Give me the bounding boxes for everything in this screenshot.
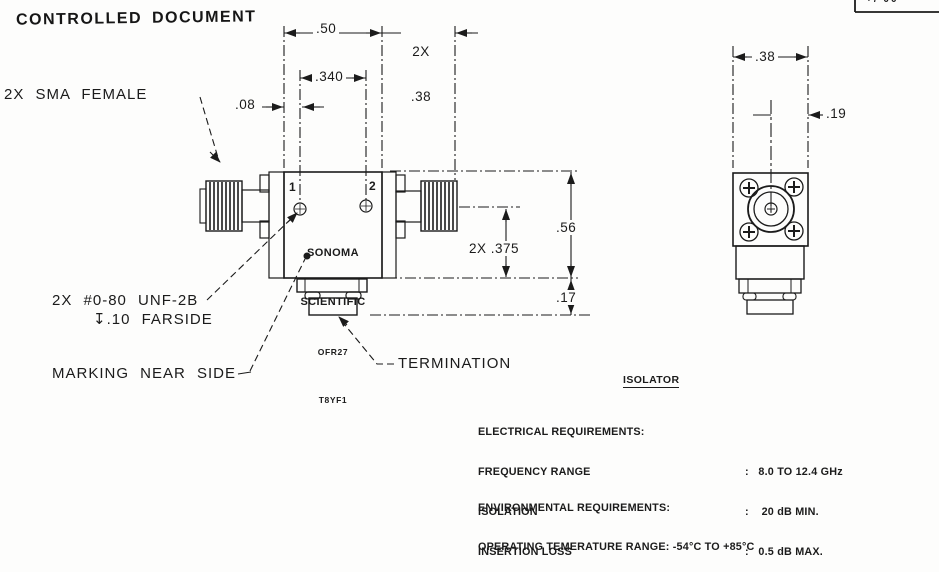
device-marking-line: SONOMA: [291, 247, 375, 260]
dim-termination-height: .17: [553, 290, 579, 305]
device-marking: SONOMA SCIENTIFIC OFR27 T8YF1: [291, 211, 375, 442]
spec-title-isolator: ISOLATOR: [623, 374, 679, 388]
callout-unf-thread: 2X #0-80 UNF-2B: [52, 292, 198, 309]
port-2-label: 2: [369, 179, 376, 193]
callout-sma-female: 2X SMA FEMALE: [4, 86, 147, 103]
dim-connector-length: 2X .38: [401, 14, 441, 134]
device-marking-line: OFR27: [291, 347, 375, 358]
dim-side-width: .38: [752, 49, 778, 64]
callout-marking-near-side: MARKING NEAR SIDE: [52, 365, 236, 382]
callout-termination: TERMINATION: [398, 355, 511, 372]
title-block-fragment-text: +/ 00: [866, 0, 899, 5]
dim-center-offset: .19: [823, 106, 849, 121]
device-marking-line: SCIENTIFIC: [291, 296, 375, 309]
dim-hole-offset: .08: [232, 97, 258, 112]
dim-port-height: 2X .375: [466, 241, 522, 256]
electrical-heading: ELECTRICAL REQUIREMENTS:: [478, 426, 933, 439]
dim-body-width: .50: [313, 21, 339, 36]
environmental-line: OPERATING TEMERATURE RANGE: -54°C TO +85…: [478, 541, 939, 554]
port-1-label: 1: [289, 180, 296, 194]
dim-hole-spacing: .340: [312, 69, 346, 84]
controlled-document-stamp: CONTROLLED DOCUMENT: [16, 8, 257, 29]
environmental-requirements: ENVIRONMENTAL REQUIREMENTS: OPERATING TE…: [478, 476, 939, 572]
callout-unf-depth: ↧.10 FARSIDE: [93, 310, 213, 328]
dim-body-height: .56: [553, 220, 579, 235]
device-marking-line: T8YF1: [291, 395, 375, 406]
environmental-heading: ENVIRONMENTAL REQUIREMENTS:: [478, 502, 939, 515]
engineering-drawing-page: CONTROLLED DOCUMENT +/ 00 2X SMA FEMALE …: [0, 0, 939, 572]
